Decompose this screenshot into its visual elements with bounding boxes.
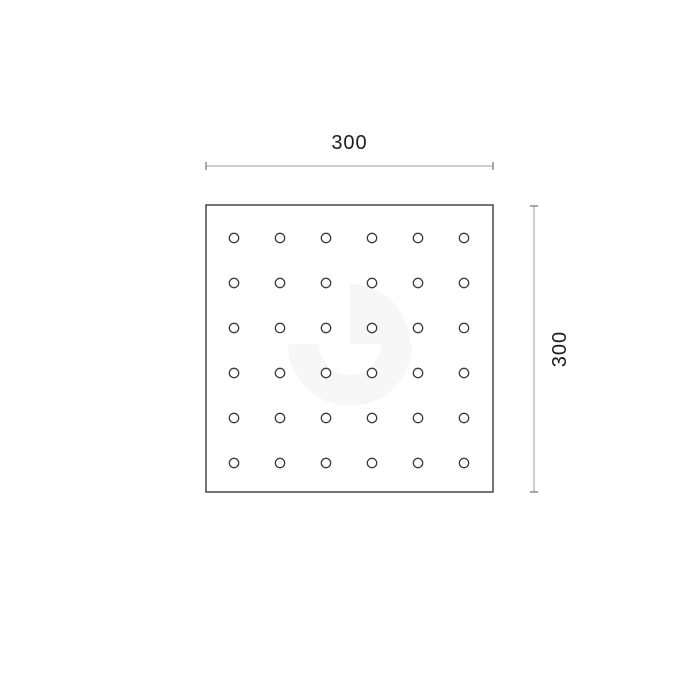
watermark-logo [288, 284, 412, 406]
hole [275, 368, 284, 377]
watermark-ring-shape [288, 344, 412, 406]
hole [229, 233, 238, 242]
hole [459, 278, 468, 287]
hole [275, 278, 284, 287]
hole [459, 368, 468, 377]
dimension-top-label: 300 [206, 131, 493, 155]
hole [229, 368, 238, 377]
hole [321, 368, 330, 377]
hole [229, 458, 238, 467]
hole-grid [229, 233, 468, 467]
dimension-right [530, 206, 538, 492]
hole [275, 233, 284, 242]
hole [413, 233, 422, 242]
technical-drawing-canvas: 300 300 [0, 0, 700, 700]
dimension-top [206, 162, 493, 170]
hole [413, 323, 422, 332]
hole [367, 413, 376, 422]
hole [367, 458, 376, 467]
hole [229, 278, 238, 287]
hole [367, 278, 376, 287]
hole [367, 368, 376, 377]
hole [321, 413, 330, 422]
watermark-wedge-shape [350, 284, 410, 344]
hole [413, 278, 422, 287]
hole [459, 233, 468, 242]
hole [229, 413, 238, 422]
hole [275, 323, 284, 332]
hole [321, 323, 330, 332]
hole [459, 458, 468, 467]
drawing-svg [0, 0, 700, 700]
hole [229, 323, 238, 332]
plate-outline [206, 205, 493, 492]
hole [321, 278, 330, 287]
hole [459, 323, 468, 332]
dimension-right-label: 300 [548, 309, 572, 389]
hole [459, 413, 468, 422]
hole [321, 458, 330, 467]
hole [413, 458, 422, 467]
hole [321, 233, 330, 242]
hole [413, 413, 422, 422]
hole [275, 458, 284, 467]
hole [413, 368, 422, 377]
hole [367, 233, 376, 242]
hole [275, 413, 284, 422]
hole [367, 323, 376, 332]
